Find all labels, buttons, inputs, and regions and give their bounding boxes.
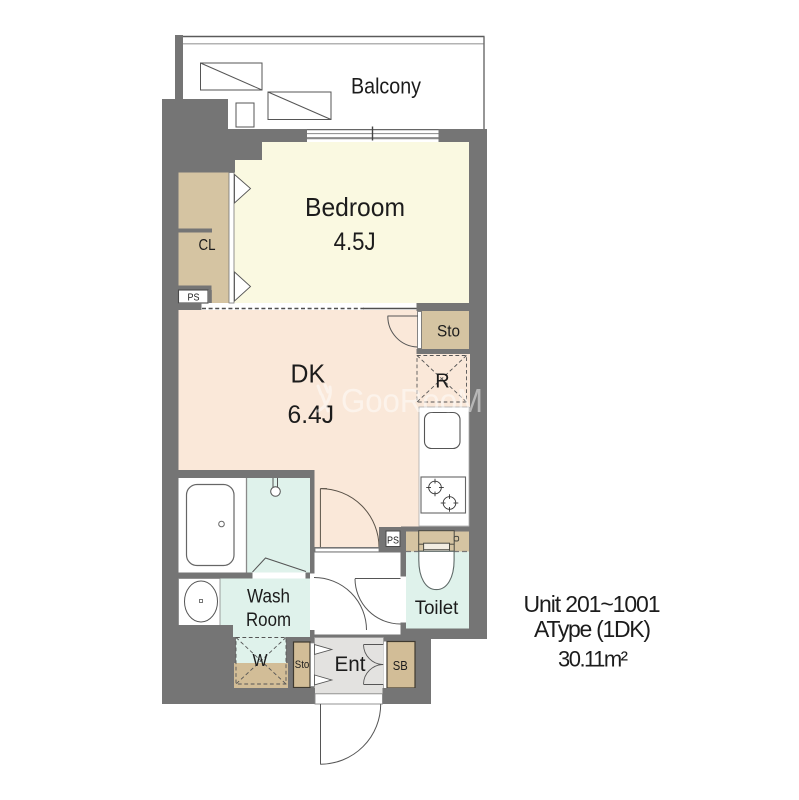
svg-text:CL: CL xyxy=(199,237,216,254)
svg-text:PS: PS xyxy=(387,535,399,547)
svg-text:SB: SB xyxy=(393,659,408,673)
svg-text:4.5J: 4.5J xyxy=(334,228,376,256)
svg-text:Sto: Sto xyxy=(437,322,460,341)
svg-text:PS: PS xyxy=(188,292,200,304)
svg-text:GooRooM: GooRooM xyxy=(341,382,483,419)
svg-text:30.11m²: 30.11m² xyxy=(558,647,628,672)
svg-text:Wash: Wash xyxy=(247,587,290,608)
svg-text:AType (1DK): AType (1DK) xyxy=(534,616,651,642)
svg-text:Toilet: Toilet xyxy=(415,598,459,619)
svg-text:Sto: Sto xyxy=(295,659,310,671)
svg-text:Balcony: Balcony xyxy=(351,74,421,99)
svg-text:Room: Room xyxy=(246,610,291,631)
svg-text:DK: DK xyxy=(291,359,326,389)
svg-text:W: W xyxy=(253,650,268,670)
svg-text:Ent: Ent xyxy=(335,653,366,676)
svg-text:Bedroom: Bedroom xyxy=(305,192,405,222)
svg-text:Unit 201~1001: Unit 201~1001 xyxy=(524,591,661,617)
